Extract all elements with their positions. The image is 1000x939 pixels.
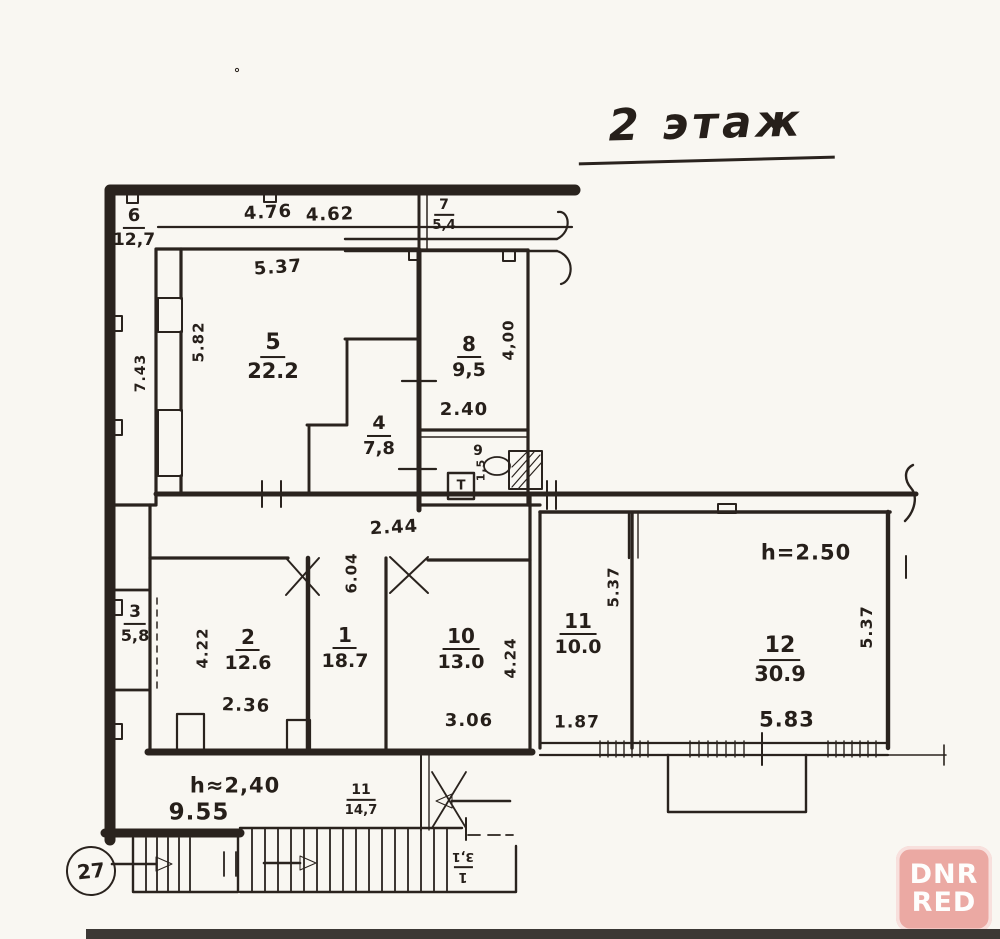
- arrow-head: [300, 856, 316, 870]
- stair-treads: [252, 828, 447, 892]
- sheet-number: 27: [76, 858, 106, 885]
- balcony-outline: [668, 755, 806, 812]
- dim-2-36: 2.36: [221, 696, 270, 716]
- dim-4-22: 4.22: [196, 627, 211, 668]
- upper-middle-walls: [307, 250, 540, 510]
- dim-5-83: 5.83: [759, 710, 815, 731]
- dim-5-37-top: 5.37: [253, 257, 303, 278]
- dnr-red-watermark: DNR RED: [896, 846, 992, 932]
- scan-speck: [235, 68, 238, 71]
- room-1-label: 118.7: [322, 625, 369, 671]
- right-wing-walls: [540, 504, 946, 812]
- floor-plan-scan: 2 этаж 612,7 522.2 75,4 89,5 47,8 9 1,5 …: [0, 0, 1000, 939]
- room-3-label: 35,8: [121, 604, 150, 644]
- room-12-label: 1230.9: [754, 635, 806, 685]
- dim-4-76: 4.76: [243, 203, 292, 224]
- dim-5-82: 5.82: [192, 321, 207, 362]
- dim-5-37-room12: 5.37: [859, 605, 875, 648]
- arrow-head: [156, 857, 172, 871]
- dim-2-44: 2.44: [369, 518, 418, 539]
- room-9-label: 9: [473, 444, 483, 458]
- room-11-label: 1110.0: [555, 611, 602, 657]
- room-5-label: 522.2: [247, 332, 299, 382]
- corridor-spine-walls: [156, 465, 916, 521]
- page-title: 2 этаж: [577, 95, 835, 166]
- washbasin-symbol: [484, 457, 510, 475]
- closet-niche: [177, 714, 204, 751]
- room-10-label: 1013.0: [438, 626, 485, 672]
- dim-h-2-50: h=2.50: [761, 543, 851, 564]
- lower-middle-walls: [110, 316, 540, 752]
- dim-7-43: 7.43: [134, 354, 148, 393]
- dim-4-00: 4,00: [502, 319, 517, 360]
- dim-4-62: 4.62: [305, 205, 354, 225]
- dim-9-55: 9.55: [169, 802, 230, 825]
- room-9-door-width: 1,5: [476, 459, 487, 482]
- floor-plan-drawing: [0, 0, 1000, 939]
- door-cross-room10: [390, 557, 428, 593]
- stair-flight-entry-label: 13,1: [452, 851, 474, 883]
- door-cross-room2: [286, 558, 319, 595]
- watermark-line2: RED: [912, 889, 977, 917]
- room-7-label: 75,4: [432, 198, 456, 232]
- room-4-label: 47,8: [363, 414, 395, 458]
- dim-h-2-40: h≈2,40: [190, 776, 280, 797]
- dim-5-37-room11: 5.37: [607, 566, 622, 607]
- room-2-label: 212.6: [225, 627, 272, 673]
- bathtub-symbol: [509, 451, 542, 489]
- room-6-label: 612,7: [113, 207, 155, 249]
- room-8-label: 89,5: [452, 334, 486, 380]
- dim-3-06: 3.06: [445, 712, 493, 730]
- toilet-tank-label: T: [457, 480, 466, 493]
- dim-6-04: 6.04: [345, 552, 360, 593]
- stair-flight-main-label: 1114,7: [345, 783, 378, 817]
- dim-4-24: 4.24: [504, 637, 519, 678]
- outer-walls: [105, 190, 575, 840]
- dim-2-40: 2.40: [440, 401, 488, 419]
- dim-1-87: 1.87: [554, 715, 600, 732]
- scan-edge-strip: [86, 929, 1000, 939]
- watermark-line1: DNR: [910, 861, 979, 889]
